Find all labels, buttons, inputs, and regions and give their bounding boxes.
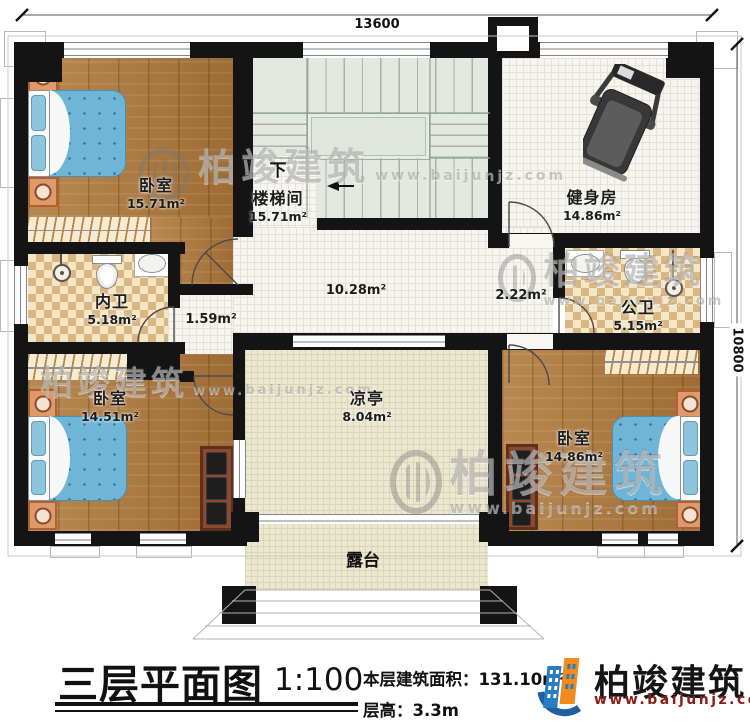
sofa-cushion <box>206 502 227 525</box>
plan-scale: 1:100 <box>274 662 363 698</box>
title-underline-thick <box>55 702 358 706</box>
label-nook-area: 1.59m² <box>185 312 236 327</box>
pavilion-terrace-sill <box>245 514 488 524</box>
wall-stair-south <box>317 218 493 230</box>
bedroom-br-door-opening <box>507 334 553 349</box>
stairwell-window <box>303 42 430 58</box>
wall-bath-inner-north <box>14 242 185 254</box>
stair-flight-upper <box>307 58 490 113</box>
cabinet-panel <box>512 502 531 526</box>
window-sill-right <box>714 252 732 328</box>
bath-inner-window <box>14 266 28 324</box>
chimney <box>488 17 538 55</box>
pillar-pavilion-right <box>479 512 509 542</box>
company-website: www.baijunjz.com <box>594 692 750 708</box>
label-bath-inner: 内卫 5.18m² <box>87 288 136 327</box>
wall-corner-top-left <box>14 42 62 82</box>
bed-pillow <box>683 460 698 495</box>
title-underline-thin <box>55 710 358 712</box>
wall-bath-public-west <box>553 248 565 298</box>
company-logo-icon <box>533 652 591 718</box>
bed-bottom-right <box>612 416 700 499</box>
bedroom-br-window-2 <box>648 533 678 544</box>
window-sill-bottom-1 <box>50 546 100 558</box>
closet-bottom-left <box>28 354 127 380</box>
wall-bedroom-tl-south-stub <box>178 284 253 295</box>
floor-height-text: 层高：3.3m <box>363 697 459 721</box>
wall-gym-west <box>488 58 502 248</box>
stair-flight-lower <box>307 158 490 218</box>
bed-pillow <box>31 135 46 171</box>
label-bedroom-top-left: 卧室 15.71m² <box>127 172 185 211</box>
wall-pavilion-east <box>488 348 502 531</box>
wall-chunk-corridor <box>127 354 180 380</box>
pillar-pavilion-left <box>231 512 259 542</box>
stair-flight-mid-right <box>430 113 490 158</box>
shower-head <box>53 264 71 282</box>
wall-bedroom-bl-door-stub <box>180 371 194 382</box>
wall-bath-inner-south <box>14 342 185 354</box>
bedroom-bl-window-1 <box>55 533 91 544</box>
bed-pillow <box>31 460 46 495</box>
cabinet-bottom-right-bedroom <box>506 444 538 530</box>
pavilion-floor <box>245 348 488 516</box>
nightstand <box>28 389 57 418</box>
pillar-terrace-left <box>222 586 256 624</box>
nightstand <box>28 177 58 207</box>
bath-public-window <box>700 258 714 322</box>
label-bath-public: 公卫 5.15m² <box>613 294 662 333</box>
sink <box>566 250 604 277</box>
wall-corner-top-right <box>666 42 714 78</box>
bed-pillow <box>31 421 46 456</box>
label-stairwell: 楼梯间 15.71m² <box>249 185 307 224</box>
shower-head <box>665 279 683 297</box>
bed-pillow <box>31 95 46 131</box>
dimension-right: 10800 <box>730 323 745 376</box>
pillar-terrace-right <box>480 586 517 624</box>
cabinet-panel <box>512 450 531 474</box>
sofa-bottom-left-bedroom <box>200 446 234 531</box>
label-bedroom-bottom-left: 卧室 14.51m² <box>81 385 139 424</box>
sofa-cushion <box>206 477 227 500</box>
treadmill-icon <box>583 64 703 192</box>
stair-landing <box>307 113 430 160</box>
window-sill-bottom-3 <box>597 546 645 558</box>
shower-cord <box>672 250 674 278</box>
wall-bottom-right <box>488 531 714 546</box>
bed-bottom-left <box>28 416 125 499</box>
bedroom-tl-window <box>64 42 190 58</box>
dimension-top: 13600 <box>350 17 403 32</box>
closet-top-left <box>28 217 150 242</box>
bedroom-bl-window-2 <box>140 533 186 544</box>
wall-bottom-left <box>14 531 247 546</box>
label-bedroom-bottom-right: 卧室 14.86m² <box>545 425 603 464</box>
wall-bath-inner-east <box>168 242 180 308</box>
window-sill-bottom-4 <box>644 546 684 558</box>
pavilion-west-window <box>233 440 246 498</box>
pavilion-north-window <box>293 335 445 347</box>
bed-pillow <box>683 421 698 456</box>
stair-flight-mid-left <box>253 113 307 158</box>
label-terrace: 露台 <box>346 546 380 571</box>
label-gym: 健身房 14.86m² <box>563 184 621 223</box>
sofa-cushion <box>206 452 227 475</box>
bedroom-br-window-1 <box>602 533 638 544</box>
gym-window <box>540 42 668 58</box>
floor-plan-canvas: 柏竣建筑 www.baijunjz.com 柏竣建筑 www.baijunjz.… <box>0 0 750 722</box>
closet-bottom-right <box>605 348 698 374</box>
sink <box>134 250 170 277</box>
cabinet-panel <box>512 476 531 500</box>
gym-door-opening <box>509 234 553 248</box>
label-hall-area: 10.28m² <box>326 283 386 298</box>
label-stair-direction: 下 <box>270 156 287 181</box>
nightstand <box>28 501 57 530</box>
window-sill-bottom-2 <box>136 546 192 558</box>
label-pavilion: 凉亭 8.04m² <box>342 385 391 424</box>
bed-top-left <box>28 90 124 175</box>
label-corridor-right-area: 2.22m² <box>495 288 546 303</box>
